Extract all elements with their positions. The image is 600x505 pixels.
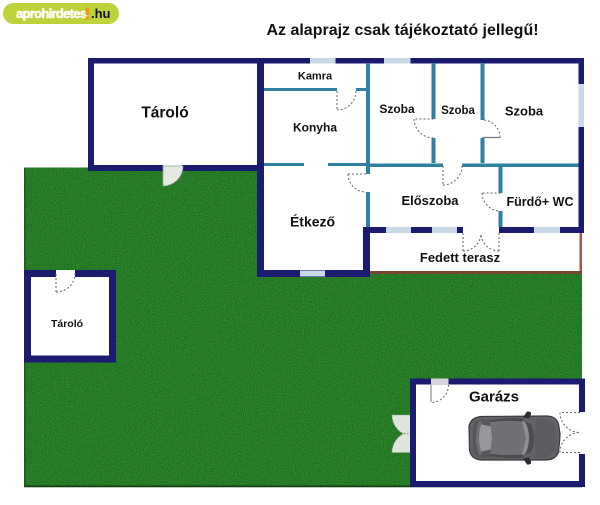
svg-text:Szoba: Szoba [505, 104, 544, 119]
svg-text:Tároló: Tároló [51, 318, 83, 330]
svg-text:Szoba: Szoba [379, 102, 415, 116]
svg-text:Az alaprajz csak tájékoztató j: Az alaprajz csak tájékoztató jellegű! [266, 22, 538, 39]
svg-text:Garázs: Garázs [469, 389, 519, 406]
svg-text:Fedett terasz: Fedett terasz [420, 250, 501, 265]
svg-text:.hu: .hu [91, 6, 111, 21]
svg-text:aprohirdetes: aprohirdetes [16, 6, 87, 21]
svg-text:Tároló: Tároló [141, 105, 188, 122]
svg-text:Fürdő+ WC: Fürdő+ WC [506, 195, 573, 209]
svg-text:Konyha: Konyha [293, 121, 337, 135]
svg-text:Kamra: Kamra [298, 71, 333, 83]
svg-text:Szoba: Szoba [441, 105, 475, 117]
svg-text:Előszoba: Előszoba [401, 193, 459, 208]
svg-text:Étkező: Étkező [290, 214, 335, 230]
